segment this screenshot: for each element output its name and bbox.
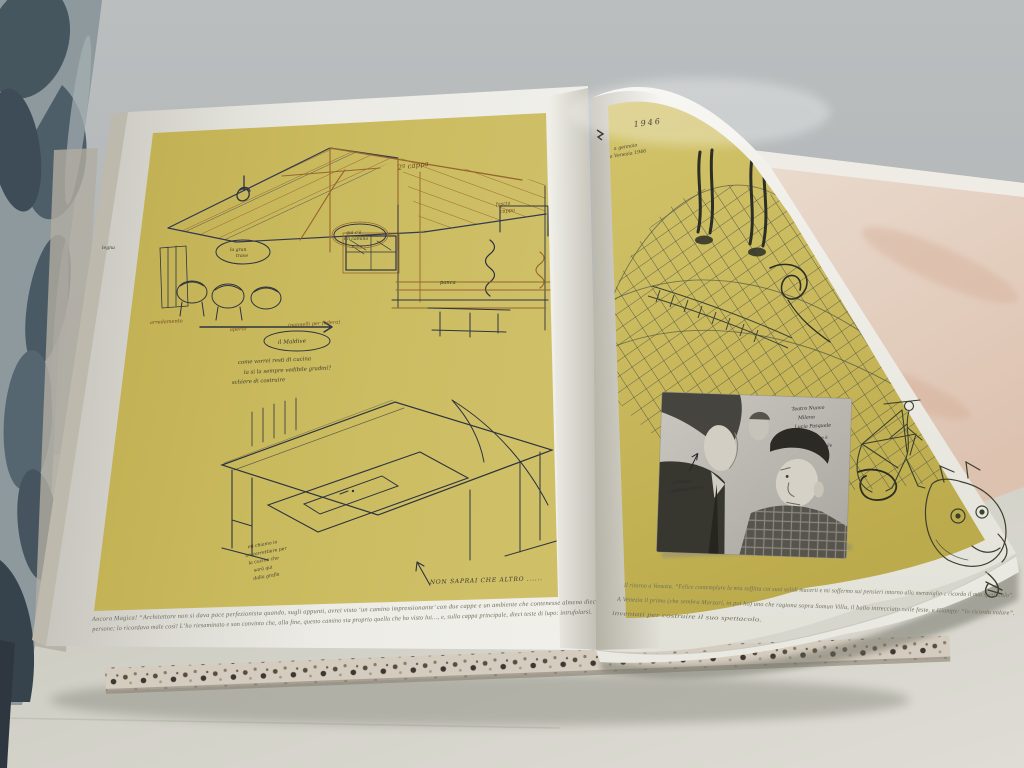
photo-note-r5: possibile (813, 442, 832, 448)
bubble-mid-b: trave (236, 253, 248, 259)
left-page: 2ª cappa fascia cappa qui c'è un camino … (46, 86, 601, 650)
scene-canvas: 2ª cappa fascia cappa qui c'è un camino … (0, 0, 1024, 768)
note-panca: panca (440, 280, 456, 286)
photo-note-r2: Milano (797, 414, 815, 421)
bubble-left: legna (102, 245, 115, 251)
photo-note-r4: vedi se è (809, 435, 828, 441)
bubble-mid-a: la gran (230, 247, 247, 253)
book-photo-scene: 2ª cappa fascia cappa qui c'è un camino … (0, 0, 1024, 768)
photograph: Teatro Nuovo Milano Lucia Pasquale vedi … (656, 392, 851, 559)
bubble-center-b: un camino (344, 236, 368, 242)
bubble-center-a: qui c'è (346, 229, 362, 236)
note-aperto: aperto (230, 326, 247, 333)
